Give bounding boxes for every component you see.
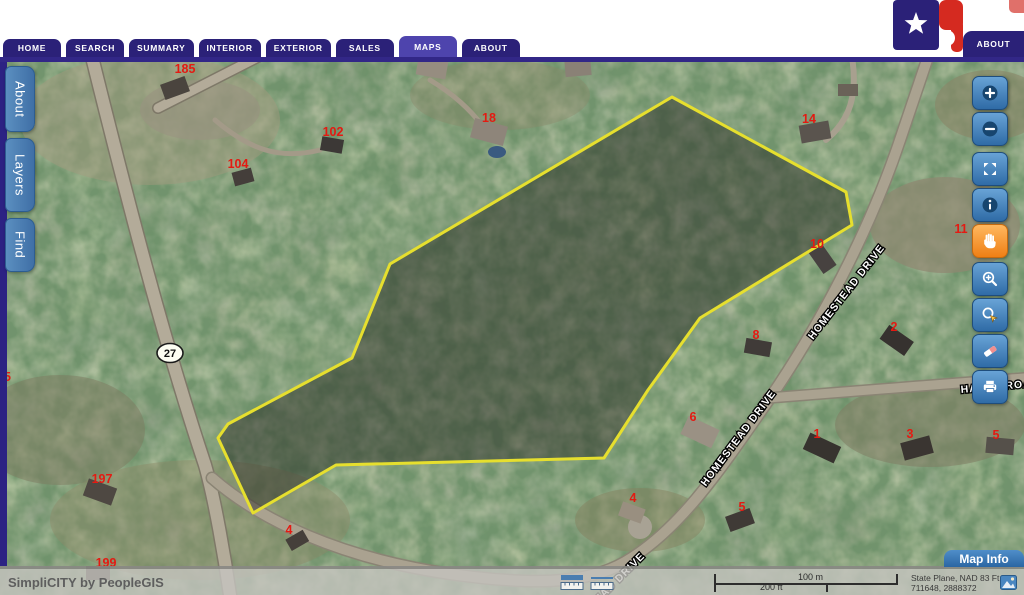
parcel-number-label: 2 <box>891 320 898 334</box>
zoom-out-button[interactable] <box>972 112 1008 146</box>
plus-circle-icon <box>981 84 999 102</box>
side-tab-layers[interactable]: Layers <box>5 138 35 212</box>
projection-info: State Plane, NAD 83 Ft 711648, 2888372 <box>911 573 999 593</box>
export-image-icon[interactable] <box>1000 575 1017 590</box>
scale-imperial-label: 200 ft <box>760 582 783 592</box>
branding-text: SimpliCITY by PeopleGIS <box>8 575 164 590</box>
projection-name: State Plane, NAD 83 Ft <box>911 573 999 583</box>
parcel-number-label: 185 <box>175 62 196 76</box>
tab-sales[interactable]: SALES <box>336 39 394 57</box>
status-footer: SimpliCITY by PeopleGIS 100 m 200 ft Sta… <box>0 566 1024 595</box>
info-icon <box>981 196 999 214</box>
aerial-map[interactable]: 1851021041814101182951971994645135HOMEST… <box>0 62 1024 595</box>
zoom-select-icon <box>981 306 999 324</box>
print-icon <box>981 378 999 396</box>
side-tab-about[interactable]: About <box>5 66 35 132</box>
tab-label: SALES <box>349 43 381 53</box>
parcel-number-label: 5 <box>993 428 1000 442</box>
parcel-number-label: 197 <box>92 472 113 486</box>
cursor-coordinates: 711648, 2888372 <box>911 583 999 593</box>
corner-accent <box>1009 0 1024 13</box>
tab-exterior[interactable]: EXTERIOR <box>266 39 331 57</box>
side-tab-label: Layers <box>13 154 28 196</box>
parcel-number-label: 18 <box>482 111 496 125</box>
tab-label: EXTERIOR <box>274 43 323 53</box>
parcel-number-label: 14 <box>802 112 816 126</box>
full-extent-button[interactable] <box>972 152 1008 186</box>
side-tab-label: About <box>13 81 28 117</box>
zoom-selection-button[interactable] <box>972 298 1008 332</box>
measure-distance-icon[interactable] <box>560 574 586 591</box>
tab-label: SEARCH <box>75 43 115 53</box>
map-info-button[interactable]: Map Info <box>944 550 1024 567</box>
scale-metric-label: 100 m <box>798 572 823 582</box>
parcel-number-label: 4 <box>286 523 293 537</box>
tab-label: MAPS <box>414 42 441 52</box>
parcel-number-label: 6 <box>690 410 697 424</box>
left-accent-strip <box>0 62 7 566</box>
peoplegis-logo <box>893 0 965 54</box>
measure-area-icon[interactable] <box>590 574 616 591</box>
parcel-number-label: 10 <box>810 237 824 251</box>
print-button[interactable] <box>972 370 1008 404</box>
map-viewport[interactable]: 1851021041814101182951971994645135HOMEST… <box>0 62 1024 595</box>
tab-label: HOME <box>18 43 46 53</box>
full-extent-icon <box>981 160 999 178</box>
tab-label: ABOUT <box>474 43 508 53</box>
top-header: HOMESEARCHSUMMARYINTERIOREXTERIORSALESMA… <box>0 0 1024 62</box>
parcel-number-label: 5 <box>739 500 746 514</box>
side-tab-label: Find <box>13 231 28 258</box>
side-tab-find[interactable]: Find <box>5 218 35 272</box>
parcel-number-label: 102 <box>323 125 344 139</box>
erase-button[interactable] <box>972 334 1008 368</box>
scale-bar: 100 m 200 ft <box>714 574 898 592</box>
tab-home[interactable]: HOME <box>3 39 61 57</box>
main-nav-tabs: HOMESEARCHSUMMARYINTERIOREXTERIORSALESMA… <box>3 36 520 57</box>
route-27-shield: 27 <box>157 344 183 363</box>
parcel-number-label: 3 <box>907 427 914 441</box>
tab-label: SUMMARY <box>137 43 186 53</box>
route-shield-number: 27 <box>164 348 176 360</box>
zoom-in-button[interactable] <box>972 76 1008 110</box>
hand-icon <box>981 232 999 250</box>
identify-button[interactable] <box>972 188 1008 222</box>
zoom-window-button[interactable] <box>972 262 1008 296</box>
header-bottom-strip <box>0 57 1024 62</box>
zoom-window-icon <box>981 270 999 288</box>
tab-summary[interactable]: SUMMARY <box>129 39 194 57</box>
parcel-number-label: 8 <box>753 328 760 342</box>
tab-maps[interactable]: MAPS <box>399 36 457 57</box>
tab-interior[interactable]: INTERIOR <box>199 39 261 57</box>
tab-label: INTERIOR <box>207 43 253 53</box>
pan-button[interactable] <box>972 224 1008 258</box>
tab-about[interactable]: ABOUT <box>462 39 520 57</box>
parcel-number-label: 1 <box>814 427 821 441</box>
parcel-number-label: 11 <box>954 222 967 236</box>
parcel-number-label: 4 <box>630 491 637 505</box>
tab-search[interactable]: SEARCH <box>66 39 124 57</box>
tab-about-corner[interactable]: ABOUT <box>963 31 1024 57</box>
erase-icon <box>981 342 999 360</box>
parcel-number-label: 104 <box>228 157 249 171</box>
simplicity-app: 1851021041814101182951971994645135HOMEST… <box>0 0 1024 595</box>
minus-circle-icon <box>981 120 999 138</box>
